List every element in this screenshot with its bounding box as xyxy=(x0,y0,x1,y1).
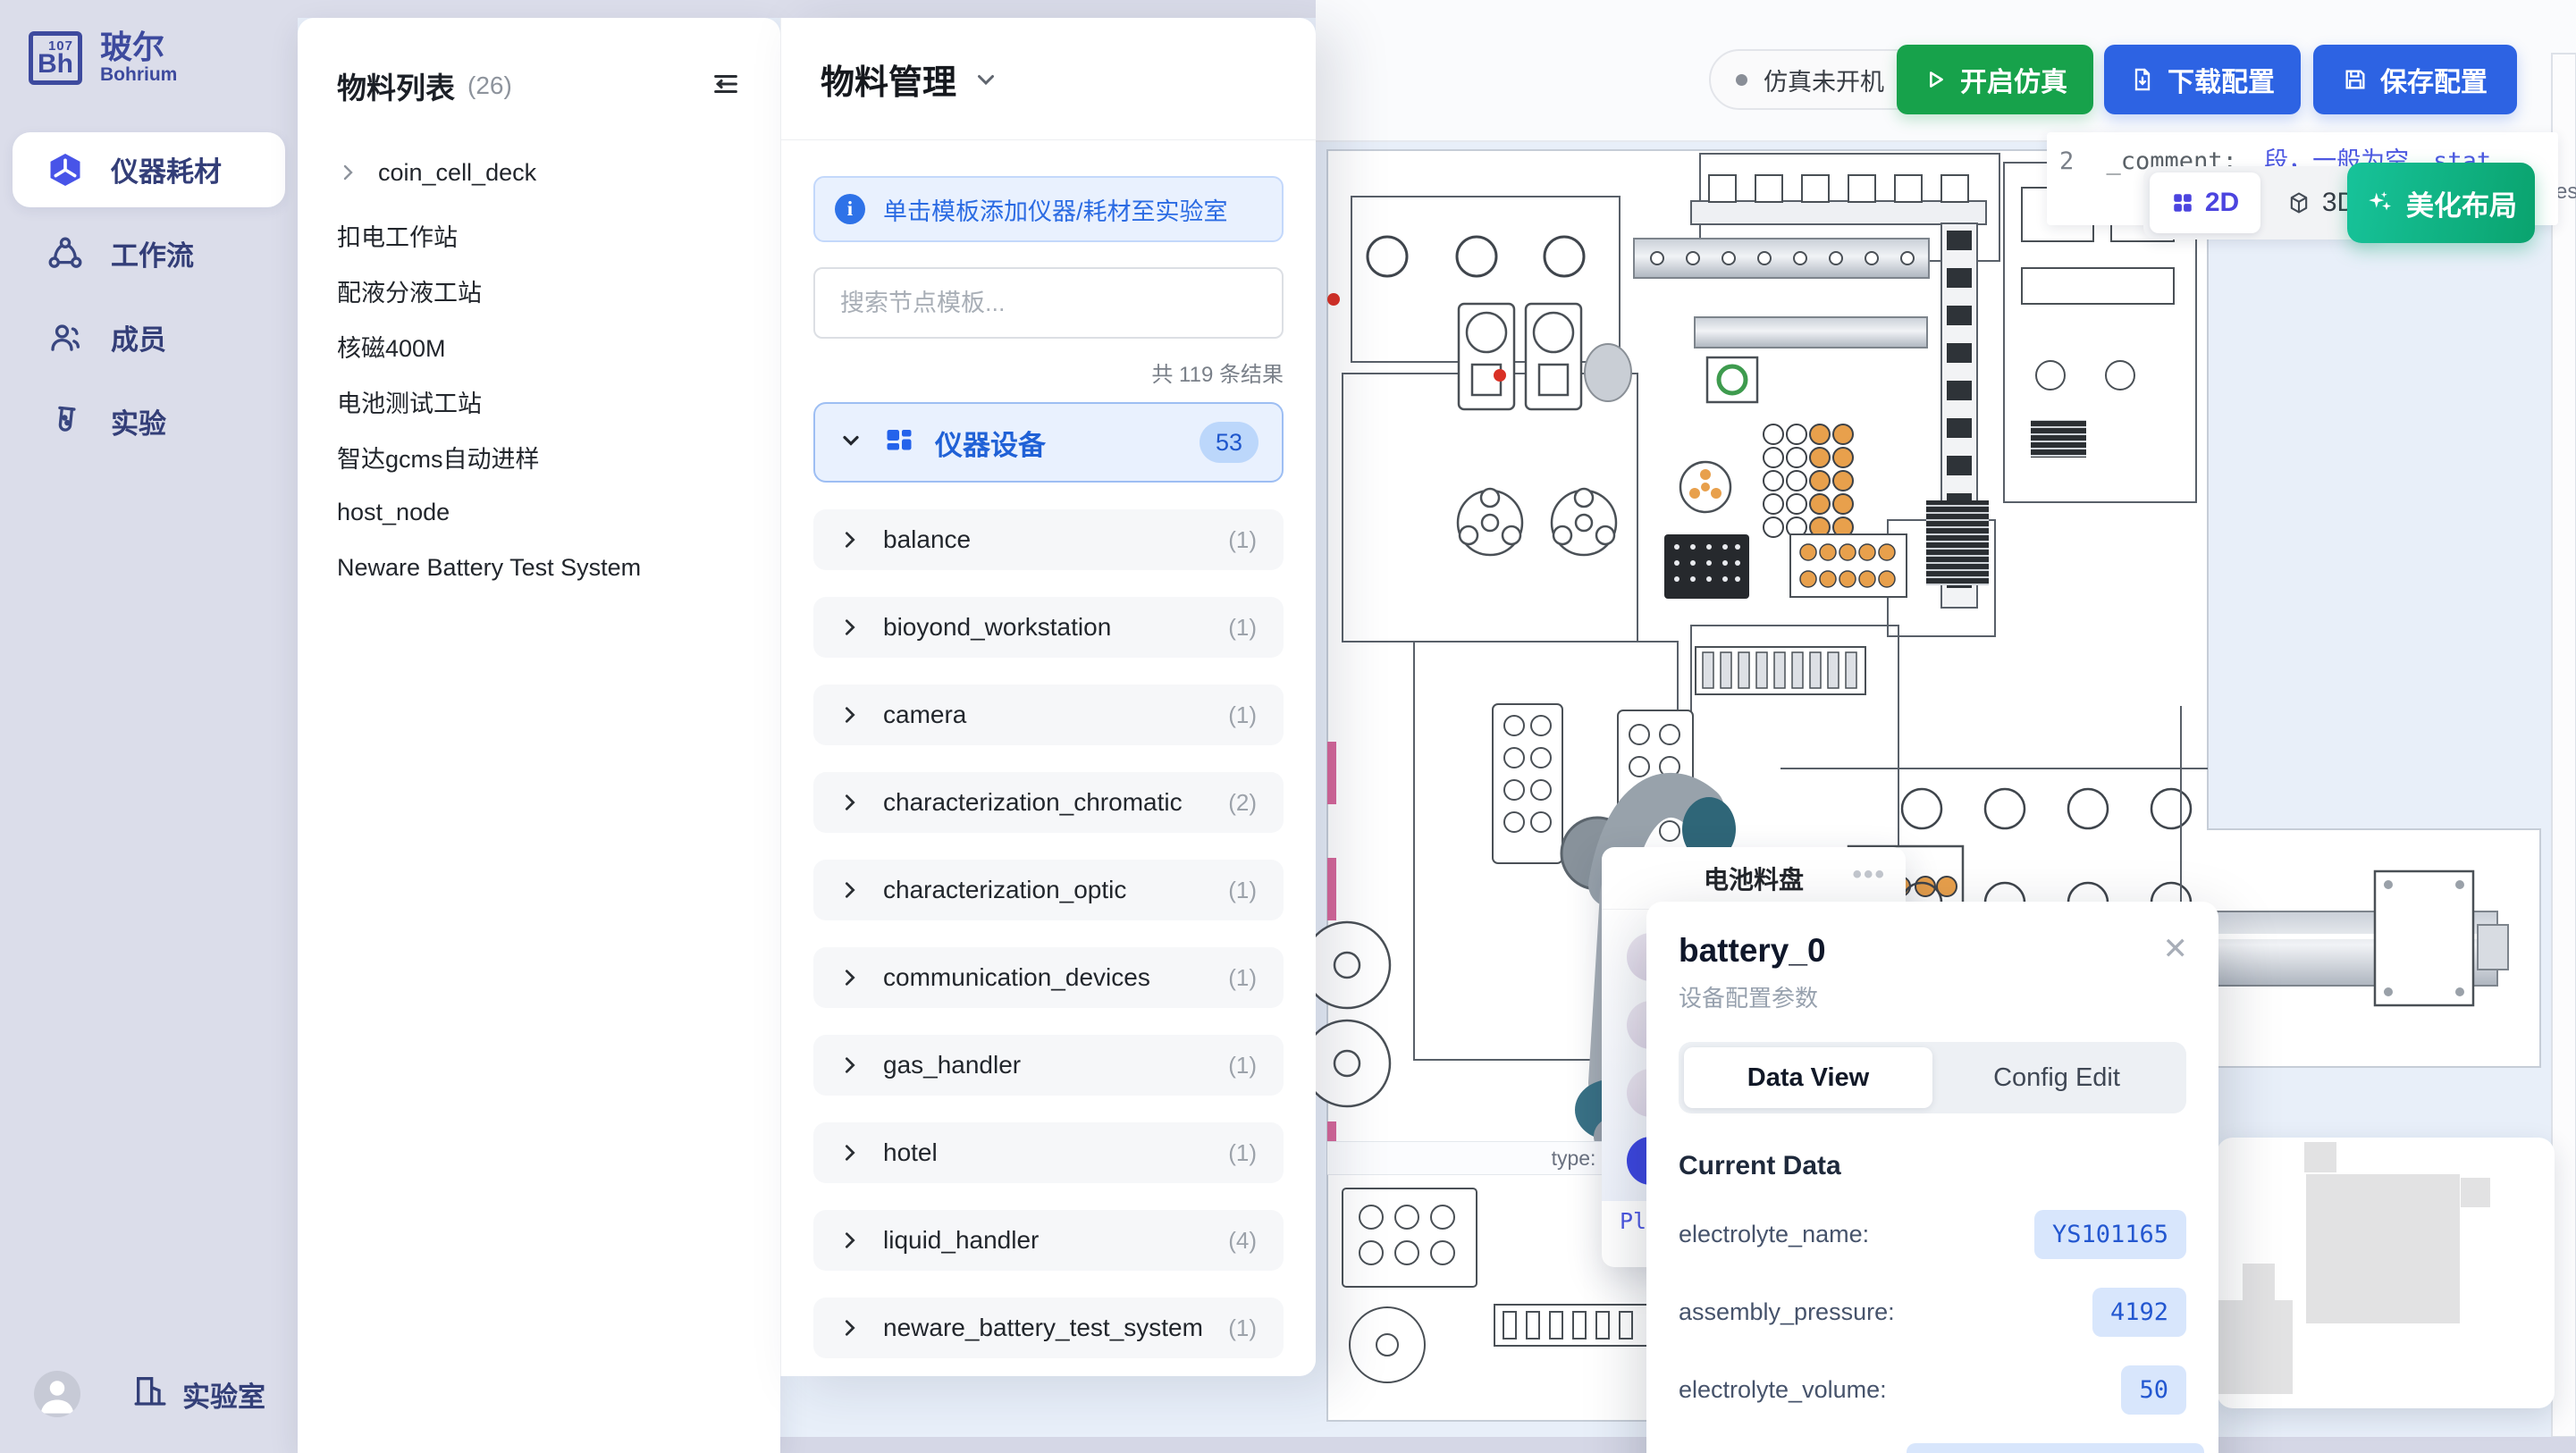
chevron-right-icon xyxy=(337,162,358,183)
sidebar-nav: 仪器耗材 工作流 成员 实验 xyxy=(0,132,298,459)
user-avatar[interactable] xyxy=(34,1371,80,1417)
save-icon xyxy=(2343,67,2368,92)
sidebar-item-label: 实验 xyxy=(111,401,166,441)
tab-data-view[interactable]: Data View xyxy=(1684,1047,1932,1108)
grid-2d-icon xyxy=(2171,191,2194,214)
template-item-camera[interactable]: camera (1) xyxy=(813,685,1284,745)
minimap-block xyxy=(2306,1174,2460,1323)
info-icon: i xyxy=(835,194,865,224)
material-item[interactable]: 电池测试工站 xyxy=(298,374,780,429)
play-icon xyxy=(1923,67,1948,92)
sidebar-item-workflow[interactable]: 工作流 xyxy=(13,216,285,291)
tab-config-edit[interactable]: Config Edit xyxy=(1932,1047,2181,1108)
material-item[interactable]: 智达gcms自动进样 xyxy=(298,429,780,484)
value-pill: 3.1559998989105225 xyxy=(1907,1443,2204,1453)
brand-name-zh: 玻尔 xyxy=(100,30,177,64)
material-list-title: 物料列表 xyxy=(337,64,455,107)
hint-text: 单击模板添加仪器/耗材至实验室 xyxy=(883,192,1228,227)
page-title-row[interactable]: 物料管理 xyxy=(781,18,1316,140)
data-row: assembly_pressure: 4192 xyxy=(1679,1287,2186,1337)
device-config-popup: battery_0 ✕ 设备配置参数 Data View Config Edit… xyxy=(1646,902,2218,1453)
popup-title: battery_0 xyxy=(1679,932,2186,970)
template-item-neware-battery-test-system[interactable]: neware_battery_test_system (1) xyxy=(813,1298,1284,1358)
category-label: 仪器设备 xyxy=(935,423,1180,463)
page-title: 物料管理 xyxy=(821,55,956,104)
category-grid-icon xyxy=(883,424,915,461)
search-input[interactable] xyxy=(813,267,1284,339)
sidebar-item-label: 工作流 xyxy=(111,233,194,273)
building-icon xyxy=(132,1373,168,1415)
close-icon[interactable]: ✕ xyxy=(2163,934,2189,964)
template-item-balance[interactable]: balance (1) xyxy=(813,509,1284,570)
file-download-icon xyxy=(2130,67,2155,92)
popup-subtitle: 设备配置参数 xyxy=(1679,980,2186,1013)
status-dot-icon xyxy=(1736,74,1747,86)
tray-title: 电池料盘 xyxy=(1704,861,1804,896)
value-pill: YS101165 xyxy=(2034,1210,2186,1259)
collapse-panel-icon[interactable] xyxy=(711,69,741,104)
beautify-layout-button[interactable]: 美化布局 xyxy=(2347,163,2535,243)
data-row: electrolyte_volume: 50 xyxy=(1679,1365,2186,1415)
minimap-block xyxy=(2304,1142,2336,1172)
material-item[interactable]: host_node xyxy=(298,484,780,540)
start-simulation-button[interactable]: 开启仿真 xyxy=(1897,45,2093,114)
material-item[interactable]: coin_cell_deck xyxy=(298,145,780,200)
minimap-block xyxy=(2217,1300,2293,1394)
popup-tabs: Data View Config Edit xyxy=(1679,1042,2186,1113)
template-item-gas-handler[interactable]: gas_handler (1) xyxy=(813,1035,1284,1096)
popup-section-title: Current Data xyxy=(1679,1151,2186,1181)
sidebar-item-experiments[interactable]: 实验 xyxy=(13,384,285,459)
sidebar-item-members[interactable]: 成员 xyxy=(13,300,285,375)
workflow-icon xyxy=(45,233,86,274)
members-icon xyxy=(45,317,86,358)
data-row: electrolyte_name: YS101165 xyxy=(1679,1209,2186,1259)
value-pill: 4192 xyxy=(2092,1288,2186,1337)
category-instrument-equipment[interactable]: 仪器设备 53 xyxy=(813,402,1284,483)
node-type-label: type: xyxy=(1552,1146,1596,1171)
data-row: open_circuit_voltage: 3.1559998989105225 xyxy=(1679,1442,2186,1453)
minimap[interactable] xyxy=(2217,1138,2555,1408)
sidebar-item-label: 成员 xyxy=(111,317,166,357)
material-list-count: (26) xyxy=(467,71,512,100)
cube-3d-icon xyxy=(2286,190,2311,215)
material-item[interactable]: Neware Battery Test System xyxy=(298,540,780,595)
sidebar: 107 Bh 玻尔 Bohrium 仪器耗材 工作流 xyxy=(0,0,298,1453)
template-item-liquid-handler[interactable]: liquid_handler (4) xyxy=(813,1210,1284,1271)
value-pill: 50 xyxy=(2121,1365,2186,1415)
material-item[interactable]: 配液分液工站 xyxy=(298,263,780,318)
sidebar-item-label: 仪器耗材 xyxy=(111,149,222,189)
app-window: esou 107 Bh 玻尔 Bohrium 仪器耗材 xyxy=(0,0,2576,1453)
chevron-down-icon xyxy=(972,65,999,92)
material-list: coin_cell_deck 扣电工作站 配液分液工站 核磁400M 电池测试工… xyxy=(298,145,780,595)
template-item-bioyond-workstation[interactable]: bioyond_workstation (1) xyxy=(813,597,1284,658)
tray-menu-dots[interactable]: ••• xyxy=(1852,860,1886,890)
element-box-icon: 107 Bh xyxy=(29,31,82,85)
template-item-communication-devices[interactable]: communication_devices (1) xyxy=(813,947,1284,1008)
sidebar-item-instruments[interactable]: 仪器耗材 xyxy=(13,132,285,207)
cube-icon xyxy=(45,149,86,190)
template-panel: 物料管理 i 单击模板添加仪器/耗材至实验室 共 119 条结果 仪器设备 53 xyxy=(780,18,1316,1376)
lab-switcher[interactable]: 实验室 xyxy=(132,1373,265,1415)
brand-logo: 107 Bh 玻尔 Bohrium xyxy=(29,30,298,86)
lab-label: 实验室 xyxy=(182,1374,265,1415)
category-count-badge: 53 xyxy=(1200,422,1259,463)
toggle-2d[interactable]: 2D xyxy=(2150,172,2260,233)
results-count: 共 119 条结果 xyxy=(813,357,1284,388)
material-list-panel: 物料列表 (26) coin_cell_deck 扣电工作站 配液分液工站 核磁… xyxy=(298,18,780,1453)
svg-text:esou: esou xyxy=(2555,180,2576,204)
template-item-hotel[interactable]: hotel (1) xyxy=(813,1122,1284,1183)
save-config-button[interactable]: 保存配置 xyxy=(2313,45,2517,114)
minimap-block xyxy=(2461,1178,2490,1207)
template-item-characterization-chromatic[interactable]: characterization_chromatic (2) xyxy=(813,772,1284,833)
chevron-down-icon xyxy=(838,428,863,458)
hint-banner: i 单击模板添加仪器/耗材至实验室 xyxy=(813,176,1284,242)
test-tube-icon xyxy=(45,401,86,442)
download-config-button[interactable]: 下载配置 xyxy=(2104,45,2301,114)
template-item-characterization-optic[interactable]: characterization_optic (1) xyxy=(813,860,1284,920)
brand-name-en: Bohrium xyxy=(100,64,177,86)
material-item[interactable]: 扣电工作站 xyxy=(298,207,780,263)
sparkles-icon xyxy=(2365,188,2395,218)
material-item[interactable]: 核磁400M xyxy=(298,318,780,374)
